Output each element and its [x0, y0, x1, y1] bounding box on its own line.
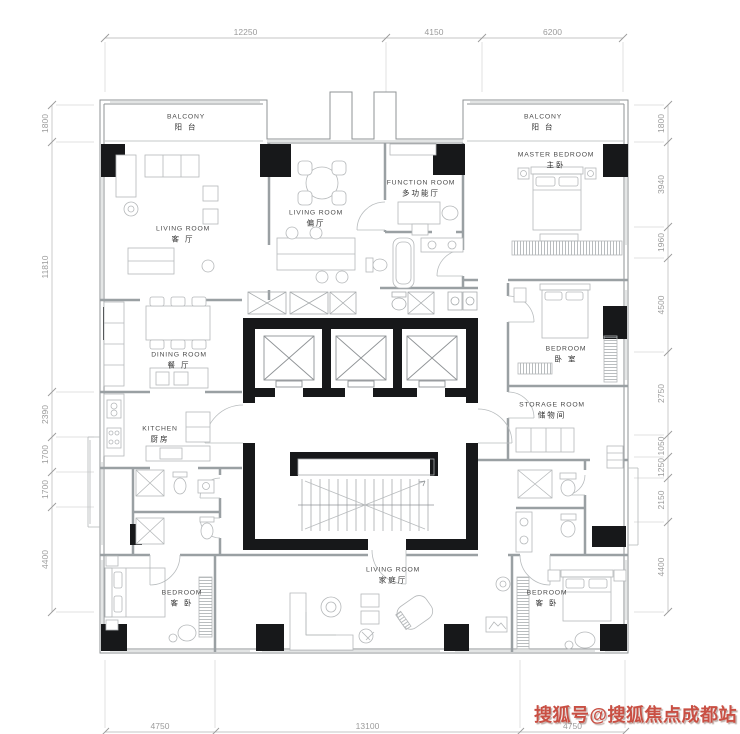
- toilet-icon: [366, 258, 387, 272]
- toilet-icon: [392, 292, 406, 310]
- living-room-second-furniture: [277, 161, 355, 283]
- dim-label-left: 1700: [40, 480, 50, 499]
- dim-label-right: 4500: [656, 295, 666, 314]
- core: [242, 318, 479, 551]
- toilet-icon: [561, 514, 576, 537]
- dim-label-left: 1800: [40, 114, 50, 133]
- picture-icon: [486, 617, 507, 632]
- living-room-main-furniture: [116, 155, 218, 274]
- family-room-furniture: [290, 577, 510, 650]
- dim-label-bottom: 13100: [356, 721, 380, 731]
- toilet-icon: [173, 472, 187, 494]
- floor-plan-page: 1225041506200 1800118102390170017004400 …: [0, 0, 740, 734]
- dining-room-furniture: [104, 297, 210, 388]
- dim-label-left: 11810: [40, 255, 50, 278]
- watermark-text: 搜狐号@搜狐焦点成都站: [534, 701, 737, 727]
- dimension-line-top: 1225041506200: [101, 27, 627, 92]
- dim-label-right: 1800: [656, 114, 666, 133]
- dim-label-right: 3940: [656, 175, 666, 194]
- toilet-icon: [200, 517, 214, 539]
- floor-plan-drawing: 1225041506200 1800118102390170017004400 …: [0, 0, 740, 734]
- storage-room-furniture: [516, 428, 623, 468]
- dimension-line-left: 1800118102390170017004400: [40, 101, 94, 616]
- core-walls: [243, 318, 478, 550]
- master-bedroom-furniture: [512, 167, 622, 255]
- dim-label-right: 1250: [656, 458, 666, 477]
- dim-label-left: 1700: [40, 445, 50, 464]
- piano-icon: [393, 592, 436, 633]
- dim-label-right: 1960: [656, 233, 666, 252]
- closet-row: [248, 292, 477, 314]
- dim-label-top: 12250: [234, 27, 258, 37]
- dim-label-right: 2150: [656, 490, 666, 509]
- dim-label-top: 6200: [543, 27, 562, 37]
- bedroom-east-furniture: [514, 284, 617, 382]
- dimension-line-right: 180039401960450027501050125021504400: [634, 101, 672, 616]
- bathrooms-west-furniture: [136, 470, 214, 544]
- dim-label-right: 1050: [656, 436, 666, 455]
- laundry-icon: [448, 292, 477, 310]
- furniture: [104, 144, 626, 650]
- dim-label-top: 4150: [425, 27, 444, 37]
- dim-label-left: 2390: [40, 405, 50, 424]
- staircase: [298, 459, 434, 531]
- elevator-icon: [264, 336, 457, 387]
- bathrooms-east-furniture: [516, 470, 576, 552]
- dim-label-bottom: 4750: [151, 721, 170, 731]
- dim-label-left: 4400: [40, 550, 50, 569]
- dim-label-right: 2750: [656, 384, 666, 403]
- toilet-icon: [560, 473, 576, 496]
- dim-label-right: 4400: [656, 557, 666, 576]
- kitchen-furniture: [104, 394, 210, 461]
- master-bath-furniture: [366, 238, 463, 288]
